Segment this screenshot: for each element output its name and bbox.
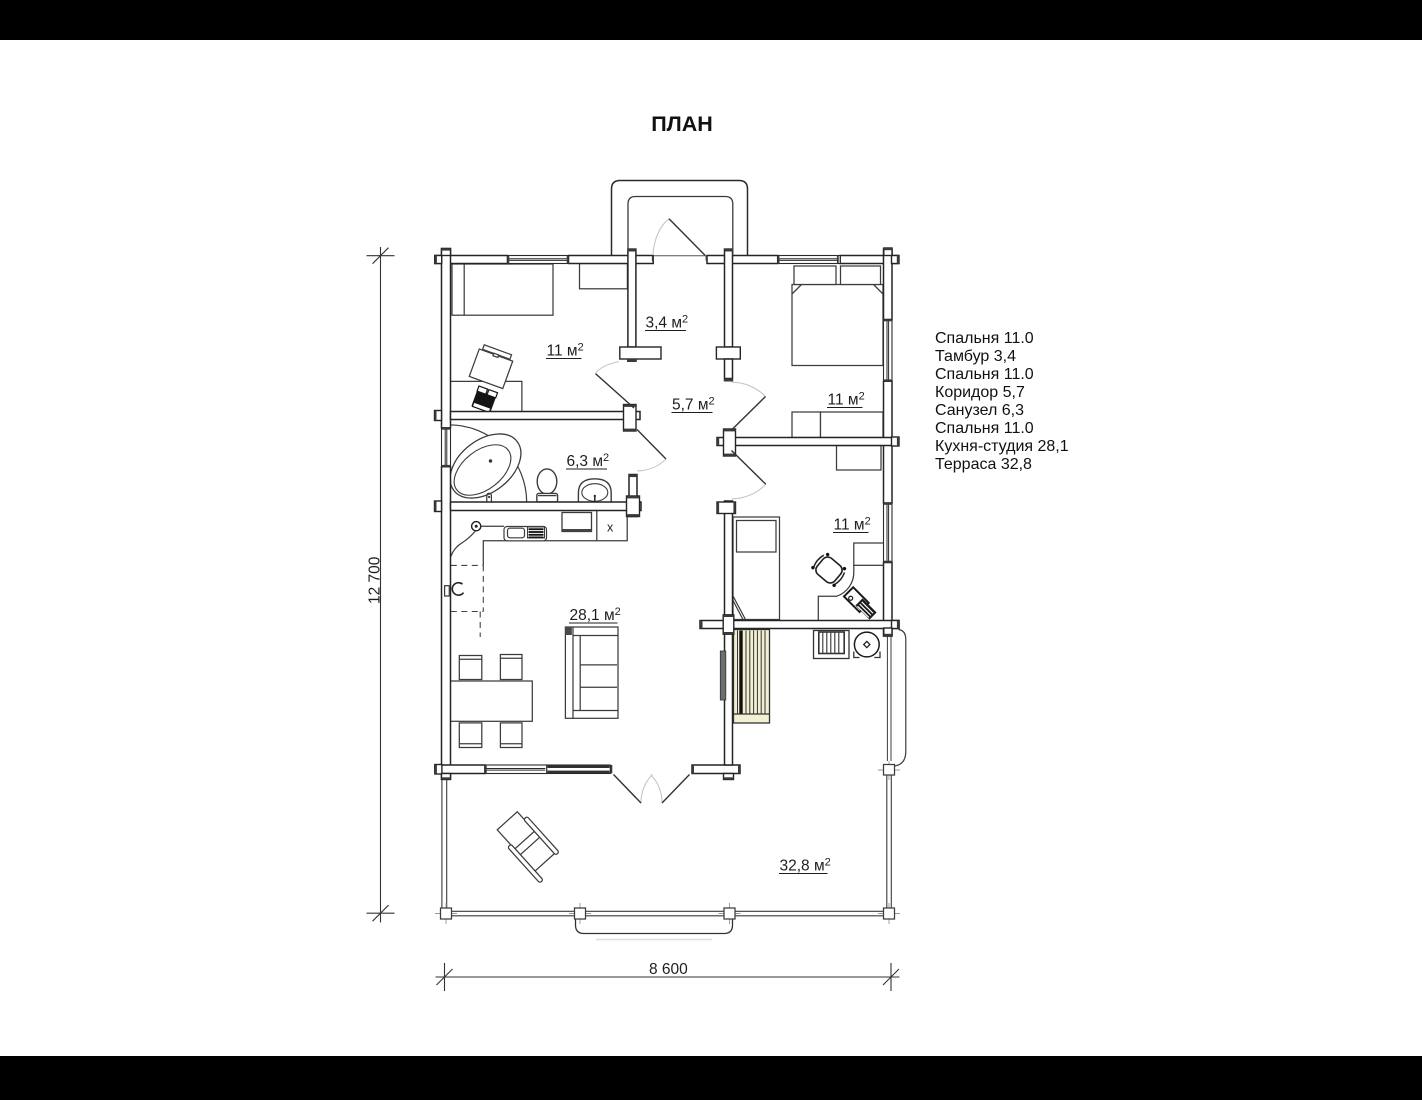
svg-text:Санузел 6,3: Санузел 6,3: [935, 402, 1024, 419]
svg-text:28,1 м2: 28,1 м2: [570, 606, 621, 624]
svg-text:Спальня 11.0: Спальня 11.0: [935, 366, 1034, 383]
svg-text:Спальня 11.0: Спальня 11.0: [935, 420, 1034, 437]
svg-text:3,4 м2: 3,4 м2: [646, 314, 689, 332]
svg-text:5,7 м2: 5,7 м2: [672, 396, 715, 414]
svg-text:Тамбур 3,4: Тамбур 3,4: [935, 348, 1016, 365]
svg-text:Коридор 5,7: Коридор 5,7: [935, 384, 1025, 401]
svg-text:8 600: 8 600: [649, 961, 688, 978]
svg-text:Терраса 32,8: Терраса 32,8: [935, 456, 1032, 473]
svg-text:ПЛАН: ПЛАН: [651, 112, 713, 136]
svg-text:32,8 м2: 32,8 м2: [780, 857, 831, 875]
svg-text:x: x: [607, 521, 614, 535]
svg-text:Спальня 11.0: Спальня 11.0: [935, 330, 1034, 347]
svg-text:12 700: 12 700: [367, 556, 384, 604]
svg-text:Кухня-студия 28,1: Кухня-студия 28,1: [935, 438, 1069, 455]
svg-text:6,3 м2: 6,3 м2: [567, 452, 610, 470]
